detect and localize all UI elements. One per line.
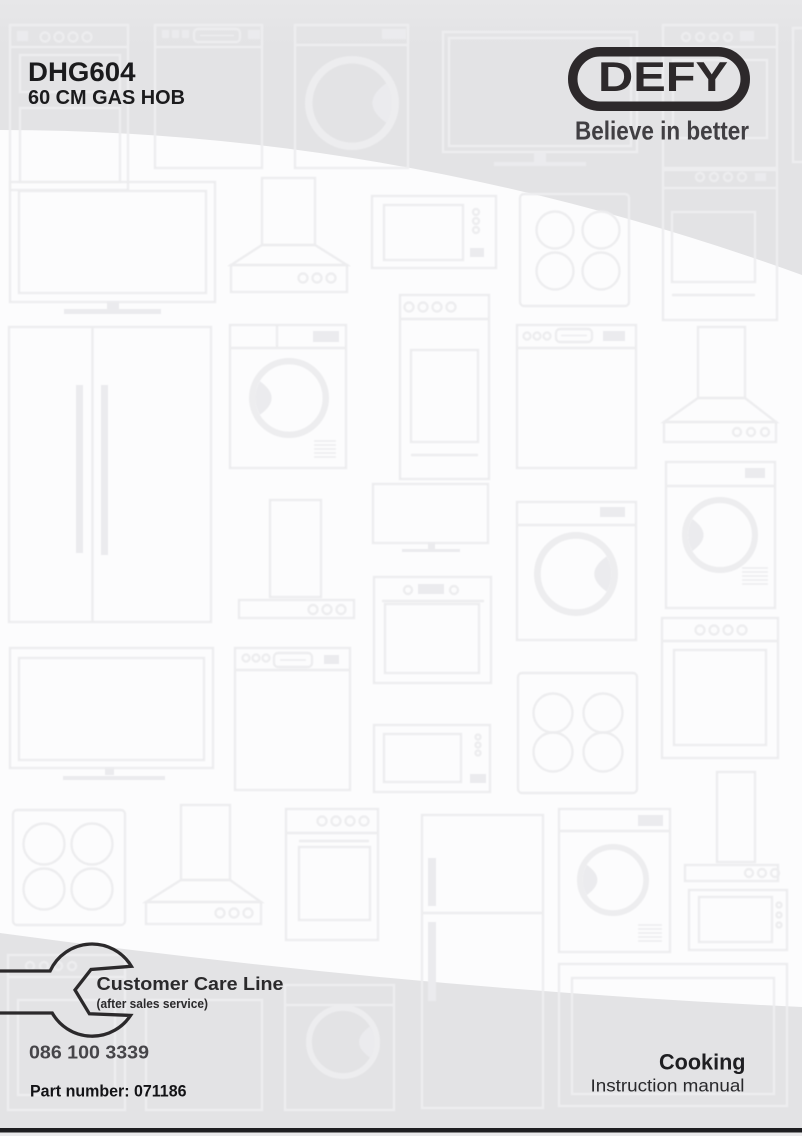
svg-text:Believe in better: Believe in better <box>575 116 749 146</box>
svg-text:Part number: 071186: Part number: 071186 <box>30 1083 187 1101</box>
svg-text:Cooking: Cooking <box>659 1050 746 1075</box>
svg-text:Instruction manual: Instruction manual <box>591 1076 745 1096</box>
svg-text:Customer Care Line: Customer Care Line <box>97 973 284 994</box>
svg-text:(after sales service): (after sales service) <box>97 996 209 1011</box>
svg-text:DEFY: DEFY <box>598 53 728 100</box>
svg-text:60 CM GAS HOB: 60 CM GAS HOB <box>28 87 185 109</box>
svg-text:086 100 3339: 086 100 3339 <box>29 1042 149 1063</box>
svg-text:DHG604: DHG604 <box>28 57 136 87</box>
